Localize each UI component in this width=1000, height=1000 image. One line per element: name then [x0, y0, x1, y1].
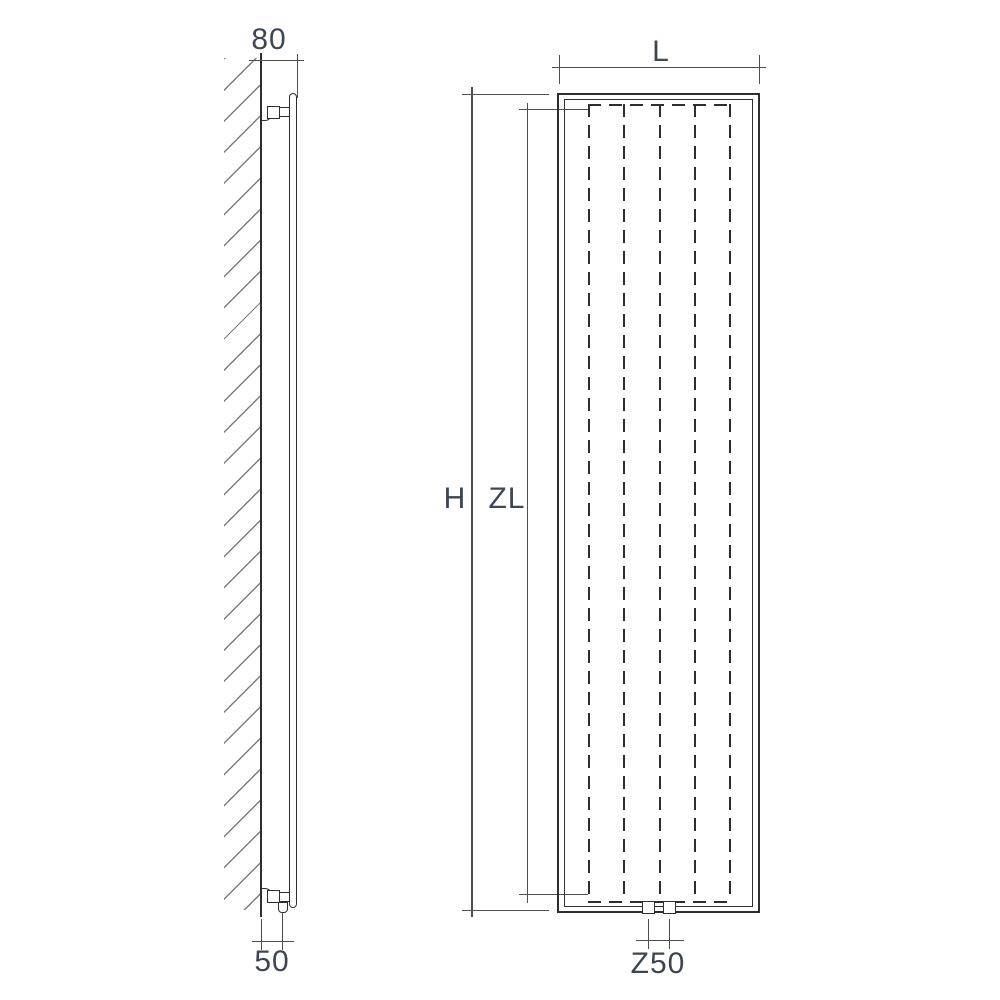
dim-label-Z50: Z50	[618, 948, 698, 980]
dim-label-H: H	[425, 483, 485, 515]
radiator-face-panel-outline	[564, 99, 754, 907]
top-bracket-clip	[267, 106, 280, 120]
bottom-bracket-clip	[267, 890, 280, 904]
dim-label-50: 50	[242, 946, 302, 978]
ext-line-L-left	[559, 55, 560, 84]
dim-label-80: 80	[239, 24, 299, 56]
bottom-connection-stub	[278, 902, 288, 913]
ext-line-H-top	[462, 94, 549, 95]
valve-connection-right	[663, 901, 677, 915]
radiator-technical-drawing: 80 50 L H ZL	[0, 0, 1000, 1000]
wall-hatch	[224, 58, 261, 910]
dim-line-80	[249, 60, 304, 61]
ext-line-H-bottom	[462, 910, 549, 911]
dim-label-ZL: ZL	[477, 483, 537, 515]
wall-surface-line	[260, 53, 262, 917]
dim-line-Z50	[636, 940, 684, 941]
ext-line-80-panel	[297, 54, 298, 98]
ext-line-Z50-right	[669, 919, 670, 949]
dim-line-50	[252, 941, 294, 942]
radiator-panel-side-profile	[289, 93, 297, 908]
valve-connection-left	[642, 901, 656, 915]
ext-line-L-right	[759, 55, 760, 84]
dim-label-L: L	[631, 36, 691, 68]
ext-line-Z50-left	[648, 919, 649, 949]
